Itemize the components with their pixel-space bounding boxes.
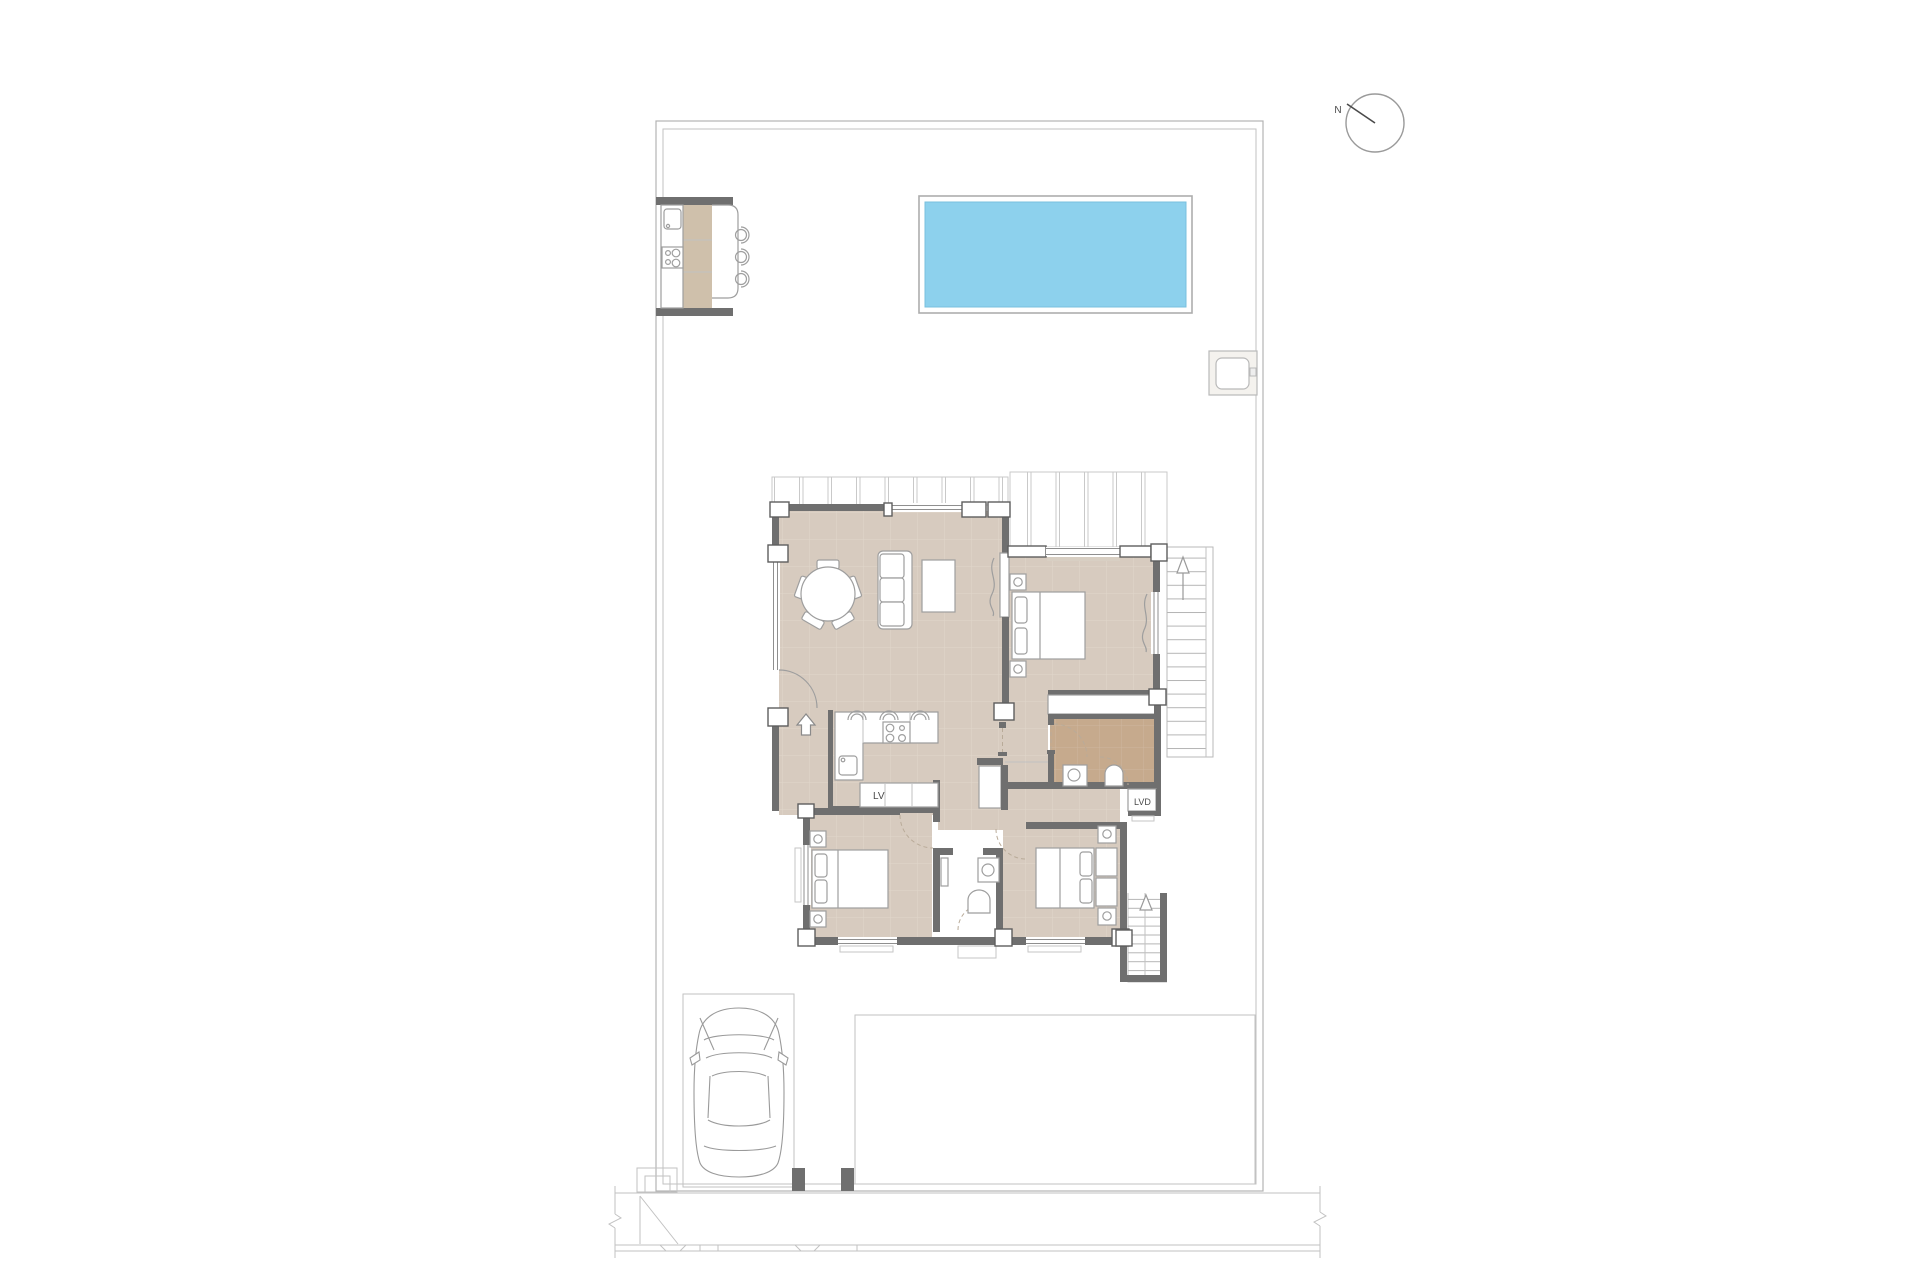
niche-step [1132,816,1154,821]
column [1151,544,1167,561]
floor-plan-drawing: N [0,0,1920,1280]
lintel [1120,546,1151,557]
sofa-cushion [880,602,904,626]
dishwasher-label: LV [873,791,885,802]
sofa-cushion [880,578,904,602]
wall-segment [983,848,1003,855]
wall-segment [828,710,833,810]
outdoor-kitchen-wall-bottom [656,308,733,316]
nightstand [810,831,826,847]
wardrobe-panel [1096,878,1117,906]
road [609,1186,1326,1258]
pillow-icon [1080,852,1092,876]
swimming-pool [919,196,1192,313]
dining-table [801,567,855,621]
pillow-icon [1015,628,1027,654]
road-break-right-icon [1314,1186,1326,1258]
column [884,503,892,516]
sofa-cushion [880,554,904,578]
window-backing [1151,592,1160,654]
gate-pillar-right [841,1168,854,1191]
wall-segment [803,905,810,932]
toilet-icon [968,890,990,913]
window-sill-inner [1047,557,1120,561]
wardrobe-panel [1096,848,1117,876]
fixture-tap-icon [1250,368,1256,376]
nightstand [1010,574,1026,590]
stair2-stringer [1160,893,1167,982]
nightstand [1098,908,1116,925]
sliding-door-panel [1000,553,1009,617]
nightstand [1010,661,1026,677]
window-sill [795,848,801,902]
shower-panel [941,858,948,886]
dishwasher-counter [860,783,938,807]
lintel [1008,546,1046,557]
wall-stub [1048,718,1054,725]
wall-segment [781,504,884,511]
sink [1063,765,1087,786]
wardrobe-wall [1048,690,1158,695]
entry-gate [637,1168,678,1244]
outdoor-counter [683,205,712,308]
stair-treads [1167,553,1206,757]
wall-segment [772,517,779,545]
column [798,929,815,946]
pergola-living [772,477,1008,505]
wall-stub [998,752,1007,756]
floor-plan-canvas: N [0,0,1920,1280]
wall-stub [999,722,1006,728]
north-label: N [1334,105,1341,116]
wall-stub [1047,750,1055,754]
stool-icon [736,252,747,263]
nightstand [1098,826,1116,843]
wardrobe-bedroom1 [1048,695,1158,714]
gate-box [637,1168,677,1192]
window-sill [840,946,893,952]
wall-segment [1128,811,1161,816]
column [768,545,788,562]
outdoor-fixture [1209,351,1257,395]
sink [978,858,999,882]
wardrobe-wall [1048,714,1158,719]
wall-segment [803,815,810,845]
wall-segment [977,758,1003,765]
outdoor-kitchen-wall-top [656,197,733,205]
column [770,502,789,517]
secondary-staircase [1128,893,1167,982]
column [1149,689,1166,705]
road-tick-marks [700,1245,857,1251]
column [995,929,1012,946]
closet [979,766,1001,808]
wall-segment [933,855,940,932]
column [768,708,788,726]
column [988,502,1010,517]
pillow-icon [1015,597,1027,623]
pillow-icon [1080,879,1092,903]
wall-segment [1120,822,1127,937]
wall-segment [1120,975,1167,982]
window-backing [771,562,780,670]
column [962,502,986,517]
curb-ramp-marks [660,1245,820,1251]
wall-segment [1156,789,1161,814]
window-backing [892,503,962,512]
wall-segment [772,726,779,811]
wall-segment [1001,765,1008,810]
pillow-icon [815,880,827,903]
north-arrow: N [1334,94,1404,152]
car-body [694,1008,784,1177]
coffee-table [922,560,955,612]
column [1116,930,1132,946]
toilet-icon [1105,765,1123,786]
pillow-icon [815,854,827,877]
driveway-ramp [640,1196,678,1244]
wall-segment [1002,617,1009,705]
wall-segment [933,848,953,855]
window-backing [802,845,811,905]
entry-step [958,946,996,958]
stool-icon [736,274,747,285]
patio-terrace [855,1015,1255,1184]
pergola-bedroom [1010,472,1167,547]
column [798,804,814,818]
stool-icon [736,230,747,241]
window-sill [1028,946,1081,952]
wall-segment [813,808,900,815]
main-staircase [1167,547,1213,757]
bar-counter [712,205,738,298]
wall-segment [897,937,1003,945]
wall-segment [1048,754,1054,783]
car [690,1008,788,1177]
pool-water [925,202,1186,307]
nightstand [810,911,826,927]
road-bottom-edge [615,1245,1320,1251]
wall-segment [1012,937,1026,945]
washer-label: LVD [1134,797,1151,807]
column [994,703,1014,720]
gate-pillar-left [792,1168,805,1191]
fixture-basin [1216,358,1249,389]
outdoor-kitchen [656,197,749,316]
road-break-left-icon [609,1186,621,1258]
wall-segment [1153,654,1160,691]
wall-segment [1153,561,1160,592]
